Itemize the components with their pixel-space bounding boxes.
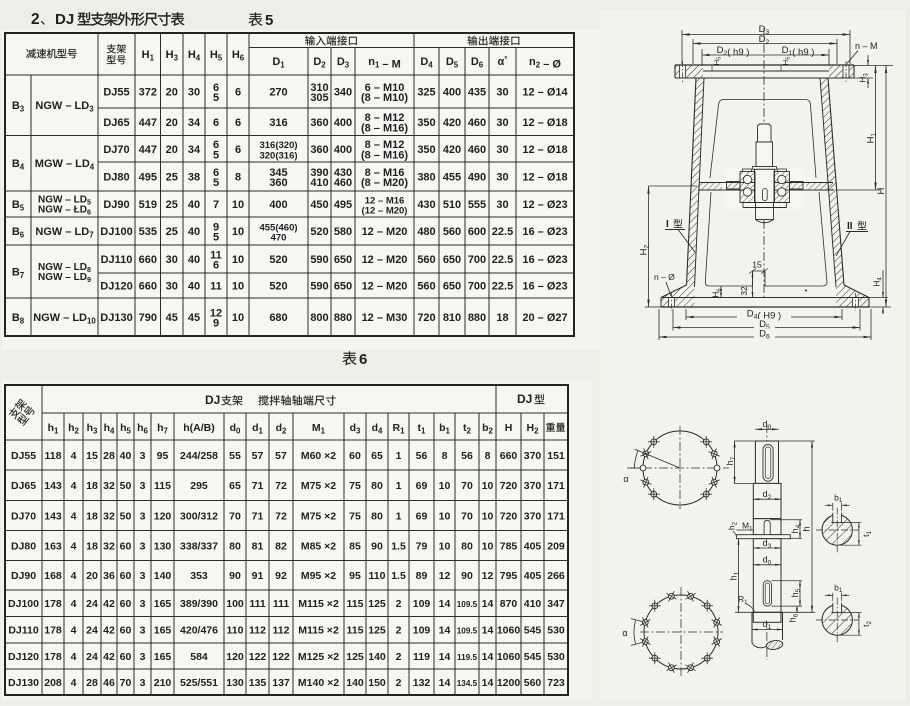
svg-text:5: 5 (213, 232, 219, 244)
svg-text:25: 25 (166, 226, 178, 238)
svg-text:60: 60 (120, 570, 132, 582)
svg-text:530: 530 (547, 625, 565, 637)
svg-text:20: 20 (86, 570, 98, 582)
svg-text:720: 720 (500, 510, 518, 522)
svg-text:22.5: 22.5 (492, 226, 513, 238)
svg-text:M125 ×2: M125 ×2 (298, 651, 339, 663)
svg-text:880: 880 (334, 312, 352, 324)
svg-text:60: 60 (120, 651, 132, 663)
svg-text:69: 69 (416, 510, 428, 522)
svg-text:800: 800 (310, 312, 328, 324)
svg-text:110: 110 (227, 625, 244, 637)
svg-text:400: 400 (334, 144, 352, 156)
svg-text:6: 6 (235, 117, 241, 129)
svg-text:650: 650 (443, 281, 461, 293)
svg-text:120: 120 (154, 510, 172, 522)
svg-text:590: 590 (310, 281, 328, 293)
svg-text:MGW – LD4: MGW – LD4 (35, 158, 95, 171)
svg-text:680: 680 (269, 312, 287, 324)
svg-text:1: 1 (396, 480, 402, 492)
svg-text:11: 11 (210, 281, 222, 293)
svg-text:305: 305 (310, 92, 328, 104)
svg-text:22.5: 22.5 (492, 254, 513, 266)
svg-text:4: 4 (71, 598, 77, 610)
svg-text:DJ80: DJ80 (103, 172, 129, 184)
svg-text:8: 8 (485, 450, 491, 462)
svg-text:18: 18 (86, 540, 98, 552)
svg-text:DJ130: DJ130 (100, 312, 132, 324)
svg-text:380: 380 (417, 172, 435, 184)
svg-text:NGW – LD9: NGW – LD9 (38, 272, 91, 284)
svg-text:18: 18 (496, 312, 508, 324)
svg-text:6: 6 (359, 351, 367, 368)
svg-text:12 – Ø23: 12 – Ø23 (522, 199, 567, 211)
svg-text:360: 360 (310, 117, 328, 129)
svg-text:460: 460 (334, 177, 352, 189)
svg-text:584: 584 (190, 651, 208, 663)
svg-text:660: 660 (139, 281, 157, 293)
svg-text:72: 72 (275, 480, 287, 492)
svg-text:10: 10 (232, 254, 244, 266)
svg-text:370: 370 (524, 450, 542, 462)
svg-text:50: 50 (120, 510, 132, 522)
svg-text:71: 71 (252, 480, 264, 492)
svg-text:163: 163 (44, 540, 62, 552)
svg-text:90: 90 (229, 570, 241, 582)
svg-text:389/390: 389/390 (180, 598, 218, 610)
svg-text:520: 520 (269, 281, 287, 293)
svg-text:3: 3 (140, 651, 146, 663)
svg-text:22.5: 22.5 (492, 281, 513, 293)
svg-text:270: 270 (269, 87, 287, 99)
svg-text:14: 14 (439, 625, 451, 637)
svg-text:109.5: 109.5 (457, 600, 478, 609)
svg-text:320(316): 320(316) (259, 150, 297, 161)
svg-text:60: 60 (120, 540, 132, 552)
svg-text:n – Ø: n – Ø (654, 272, 675, 282)
svg-text:350: 350 (417, 144, 435, 156)
svg-text:790: 790 (139, 312, 157, 324)
svg-text:1: 1 (396, 450, 402, 462)
svg-text:143: 143 (44, 510, 62, 522)
svg-text:10: 10 (439, 510, 451, 522)
svg-text:10: 10 (232, 281, 244, 293)
svg-text:660: 660 (139, 254, 157, 266)
svg-text:h: h (802, 526, 813, 531)
svg-text:89: 89 (416, 570, 428, 582)
svg-text:NGW – LD7: NGW – LD7 (35, 226, 94, 239)
svg-text:120: 120 (226, 651, 244, 663)
svg-text:350: 350 (417, 117, 435, 129)
svg-text:143: 143 (44, 480, 62, 492)
svg-text:12 – Ø18: 12 – Ø18 (522, 172, 567, 184)
svg-text:447: 447 (139, 144, 157, 156)
svg-text:DJ130: DJ130 (8, 677, 39, 689)
svg-text:5: 5 (213, 92, 219, 104)
svg-text:520: 520 (310, 226, 328, 238)
svg-text:10: 10 (232, 312, 244, 324)
svg-text:95: 95 (349, 570, 361, 582)
svg-text:490: 490 (468, 172, 486, 184)
svg-text:56: 56 (416, 450, 428, 462)
svg-text:210: 210 (154, 677, 172, 689)
svg-text:14: 14 (482, 625, 494, 637)
svg-text:119: 119 (413, 651, 430, 663)
svg-text:420/476: 420/476 (180, 625, 218, 637)
svg-text:h(A/B): h(A/B) (183, 422, 215, 434)
svg-text:II: II (847, 221, 853, 232)
svg-text:140: 140 (346, 677, 364, 689)
svg-text:DJ110: DJ110 (8, 625, 39, 637)
svg-text:6: 6 (213, 117, 219, 129)
svg-text:24: 24 (86, 598, 98, 610)
svg-text:90: 90 (461, 570, 473, 582)
svg-text:71: 71 (252, 510, 264, 522)
svg-text:122: 122 (249, 651, 267, 663)
svg-text:36: 36 (103, 570, 115, 582)
svg-text:56: 56 (461, 450, 473, 462)
svg-text:178: 178 (44, 598, 62, 610)
svg-text:10: 10 (482, 540, 494, 552)
svg-text:360: 360 (269, 177, 287, 189)
svg-text:4: 4 (71, 677, 77, 689)
svg-text:140: 140 (368, 651, 386, 663)
svg-text:70: 70 (120, 677, 132, 689)
svg-text:DJ110: DJ110 (101, 254, 133, 266)
svg-text:DJ90: DJ90 (103, 199, 129, 211)
svg-text:109: 109 (413, 598, 431, 610)
svg-text:75: 75 (349, 480, 361, 492)
svg-text:16 – Ø23: 16 – Ø23 (522, 254, 567, 266)
svg-text:870: 870 (500, 598, 518, 610)
svg-text:9: 9 (213, 318, 219, 330)
svg-text:15: 15 (86, 450, 98, 462)
svg-text:6: 6 (235, 144, 241, 156)
svg-text:430: 430 (417, 199, 435, 211)
svg-text:40: 40 (188, 281, 200, 293)
svg-text:38: 38 (188, 172, 200, 184)
svg-text:115: 115 (154, 480, 171, 492)
svg-text:10: 10 (232, 226, 244, 238)
svg-text:700: 700 (468, 254, 486, 266)
svg-text:79: 79 (416, 540, 428, 552)
svg-text:560: 560 (417, 254, 435, 266)
svg-text:470: 470 (271, 233, 287, 244)
svg-text:28: 28 (103, 450, 115, 462)
svg-text:20: 20 (166, 87, 178, 99)
svg-text:DJ90: DJ90 (11, 570, 36, 582)
svg-text:DJ65: DJ65 (11, 480, 36, 492)
svg-text:H: H (505, 422, 513, 434)
svg-text:325: 325 (417, 87, 435, 99)
svg-text:12 – Ø18: 12 – Ø18 (522, 117, 567, 129)
svg-text:168: 168 (44, 570, 62, 582)
svg-text:30: 30 (166, 254, 178, 266)
svg-text:(8 – M10): (8 – M10) (361, 92, 408, 104)
svg-text:111: 111 (249, 598, 266, 610)
svg-text:400: 400 (269, 199, 287, 211)
svg-text:30: 30 (166, 281, 178, 293)
svg-text:151: 151 (547, 450, 565, 462)
svg-text:70: 70 (461, 480, 473, 492)
svg-text:30: 30 (496, 144, 508, 156)
svg-text:109.5: 109.5 (457, 627, 478, 636)
svg-text:M95 ×2: M95 ×2 (301, 570, 336, 582)
svg-text:405: 405 (524, 540, 542, 552)
svg-text:40: 40 (188, 254, 200, 266)
svg-text:M60 ×2: M60 ×2 (301, 450, 336, 462)
svg-text:125: 125 (368, 625, 386, 637)
svg-text:55: 55 (229, 450, 241, 462)
svg-text:M115 ×2: M115 ×2 (298, 598, 339, 610)
svg-text:DJ120: DJ120 (8, 651, 39, 663)
svg-text:134.5: 134.5 (457, 679, 478, 688)
svg-text:111: 111 (273, 598, 290, 610)
svg-text:125: 125 (368, 598, 386, 610)
svg-text:460: 460 (468, 117, 486, 129)
svg-text:2: 2 (396, 625, 402, 637)
svg-text:545: 545 (524, 625, 542, 637)
svg-text:40: 40 (188, 199, 200, 211)
svg-text:560: 560 (443, 226, 461, 238)
svg-text:209: 209 (547, 540, 565, 552)
svg-text:4: 4 (71, 480, 77, 492)
svg-text:1060: 1060 (497, 625, 521, 637)
svg-text:42: 42 (103, 625, 115, 637)
svg-text:4: 4 (71, 540, 77, 552)
svg-text:495: 495 (334, 199, 352, 211)
svg-text:34: 34 (188, 144, 201, 156)
svg-text:1200: 1200 (497, 677, 521, 689)
svg-text:3: 3 (140, 625, 146, 637)
svg-text:24: 24 (86, 651, 98, 663)
svg-text:10: 10 (482, 480, 494, 492)
svg-text:118: 118 (45, 450, 62, 462)
svg-text:447: 447 (139, 117, 157, 129)
svg-text:372: 372 (139, 87, 157, 99)
svg-text:115: 115 (347, 598, 364, 610)
svg-text:46: 46 (103, 677, 115, 689)
svg-text:810: 810 (443, 312, 461, 324)
svg-text:720: 720 (417, 312, 435, 324)
svg-text:3: 3 (140, 510, 146, 522)
svg-text:(12 – M20): (12 – M20) (362, 206, 408, 217)
svg-text:650: 650 (334, 254, 352, 266)
svg-text:10: 10 (439, 540, 451, 552)
svg-text:32: 32 (103, 480, 115, 492)
svg-text:DJ: DJ (55, 11, 74, 28)
svg-text:535: 535 (139, 226, 157, 238)
svg-text:3: 3 (140, 677, 146, 689)
svg-text:α: α (623, 474, 628, 484)
svg-text:8: 8 (235, 172, 241, 184)
svg-text:M85 ×2: M85 ×2 (301, 540, 336, 552)
svg-text:n – M: n – M (855, 41, 878, 51)
svg-text:880: 880 (468, 312, 486, 324)
svg-text:60: 60 (349, 450, 361, 462)
svg-text:1.5: 1.5 (391, 540, 406, 552)
svg-text:M75 ×2: M75 ×2 (301, 510, 336, 522)
svg-text:723: 723 (547, 677, 565, 689)
svg-text:72: 72 (275, 510, 287, 522)
svg-text:455: 455 (443, 172, 461, 184)
svg-text:DJ80: DJ80 (11, 540, 36, 552)
svg-text:3: 3 (140, 450, 146, 462)
svg-text:30: 30 (496, 199, 508, 211)
svg-text:1.5: 1.5 (391, 570, 406, 582)
svg-text:4: 4 (71, 651, 77, 663)
svg-text:244/258: 244/258 (180, 450, 218, 462)
svg-text:α: α (622, 628, 627, 638)
svg-text:410: 410 (524, 598, 542, 610)
svg-text:32: 32 (103, 540, 115, 552)
svg-text:DJ70: DJ70 (103, 144, 129, 156)
svg-text:135: 135 (249, 677, 267, 689)
svg-text:32: 32 (739, 286, 749, 296)
svg-text:450: 450 (310, 199, 328, 211)
svg-text:165: 165 (154, 598, 172, 610)
svg-text:25: 25 (166, 199, 178, 211)
svg-text:25: 25 (166, 172, 178, 184)
svg-text:DJ: DJ (205, 393, 220, 407)
svg-text:400: 400 (334, 117, 352, 129)
svg-text:370: 370 (524, 510, 542, 522)
svg-text:130: 130 (154, 540, 172, 552)
svg-text:600: 600 (468, 226, 486, 238)
svg-text:34: 34 (188, 117, 201, 129)
svg-text:40: 40 (188, 226, 200, 238)
svg-text:12 – M20: 12 – M20 (362, 254, 408, 266)
svg-text:300/312: 300/312 (180, 510, 218, 522)
svg-text:519: 519 (139, 199, 157, 211)
svg-text:650: 650 (443, 254, 461, 266)
svg-text:DJ: DJ (517, 392, 532, 406)
svg-text:80: 80 (371, 480, 383, 492)
svg-text:700: 700 (468, 281, 486, 293)
svg-text:5: 5 (213, 149, 219, 161)
svg-text:580: 580 (334, 226, 352, 238)
svg-text:12: 12 (482, 570, 494, 582)
svg-text:130: 130 (226, 677, 244, 689)
svg-text:360: 360 (310, 144, 328, 156)
svg-text:435: 435 (468, 87, 486, 99)
svg-text:(8 – M16): (8 – M16) (361, 149, 408, 161)
svg-text:6: 6 (213, 260, 219, 272)
svg-text:69: 69 (416, 480, 428, 492)
svg-text:720: 720 (500, 480, 518, 492)
svg-text:42: 42 (103, 651, 115, 663)
svg-text:1060: 1060 (497, 651, 521, 663)
svg-text:75: 75 (349, 510, 361, 522)
svg-text:70: 70 (229, 510, 241, 522)
svg-text:4: 4 (71, 510, 77, 522)
svg-text:4: 4 (71, 570, 77, 582)
svg-text:7: 7 (213, 199, 219, 211)
svg-text:545: 545 (524, 651, 542, 663)
svg-text:30: 30 (496, 117, 508, 129)
svg-text:295: 295 (190, 480, 208, 492)
svg-text:405: 405 (524, 570, 542, 582)
svg-text:110: 110 (369, 570, 386, 582)
svg-text:80: 80 (229, 540, 241, 552)
svg-text:NGW – ŁD6: NGW – ŁD6 (38, 205, 91, 217)
svg-text:171: 171 (547, 510, 565, 522)
svg-text:M140 ×2: M140 ×2 (298, 677, 339, 689)
svg-text:NGW – LD3: NGW – LD3 (35, 100, 94, 113)
svg-text:20: 20 (166, 144, 178, 156)
svg-text:8: 8 (442, 450, 448, 462)
svg-text:12 – M20: 12 – M20 (362, 226, 408, 238)
svg-text:H: H (876, 187, 887, 194)
svg-text:DJ70: DJ70 (11, 510, 36, 522)
svg-text:370: 370 (524, 480, 542, 492)
svg-text:95: 95 (157, 450, 169, 462)
svg-text:50: 50 (120, 480, 132, 492)
svg-text:137: 137 (272, 677, 290, 689)
svg-text:555: 555 (468, 199, 486, 211)
svg-text:DJ120: DJ120 (100, 281, 132, 293)
svg-text:12: 12 (439, 570, 451, 582)
svg-text:45: 45 (166, 312, 178, 324)
svg-text:3: 3 (140, 480, 146, 492)
svg-text:DJ100: DJ100 (100, 226, 132, 238)
svg-text:32: 32 (103, 510, 115, 522)
svg-text:91: 91 (252, 570, 264, 582)
svg-text:M115 ×2: M115 ×2 (298, 625, 339, 637)
svg-text:10: 10 (482, 510, 494, 522)
svg-text:30: 30 (496, 87, 508, 99)
svg-text:14: 14 (439, 598, 451, 610)
svg-text:I: I (666, 219, 669, 230)
svg-text:316: 316 (269, 117, 287, 129)
svg-text:30: 30 (496, 172, 508, 184)
svg-text:410: 410 (310, 177, 328, 189)
svg-text:82: 82 (275, 540, 287, 552)
svg-text:560: 560 (524, 677, 542, 689)
svg-text:60: 60 (120, 598, 132, 610)
svg-text:560: 560 (417, 281, 435, 293)
svg-text:660: 660 (500, 450, 518, 462)
svg-text:14: 14 (482, 677, 494, 689)
svg-text:15: 15 (752, 260, 762, 270)
svg-text:80: 80 (461, 540, 473, 552)
svg-text:510: 510 (443, 199, 461, 211)
svg-text:495: 495 (139, 172, 157, 184)
svg-text:14: 14 (439, 651, 451, 663)
svg-text:14: 14 (482, 651, 494, 663)
svg-text:5: 5 (265, 12, 273, 29)
svg-text:70: 70 (461, 510, 473, 522)
svg-text:16 – Ø23: 16 – Ø23 (522, 281, 567, 293)
svg-text:57: 57 (275, 450, 287, 462)
svg-text:165: 165 (154, 651, 172, 663)
svg-text:178: 178 (44, 651, 62, 663)
svg-text:178: 178 (44, 625, 62, 637)
svg-text:18: 18 (86, 510, 98, 522)
svg-text:DJ100: DJ100 (8, 598, 39, 610)
svg-text:3: 3 (140, 540, 146, 552)
svg-text:DJ65: DJ65 (103, 117, 129, 129)
svg-text:338/337: 338/337 (180, 540, 218, 552)
svg-text:4: 4 (71, 450, 77, 462)
svg-text:40: 40 (120, 450, 132, 462)
svg-text:14: 14 (482, 598, 494, 610)
svg-text:28: 28 (86, 677, 98, 689)
svg-text:85: 85 (349, 540, 361, 552)
svg-text:81: 81 (252, 540, 264, 552)
svg-text:92: 92 (275, 570, 287, 582)
svg-text:(8 – M20): (8 – M20) (361, 177, 408, 189)
